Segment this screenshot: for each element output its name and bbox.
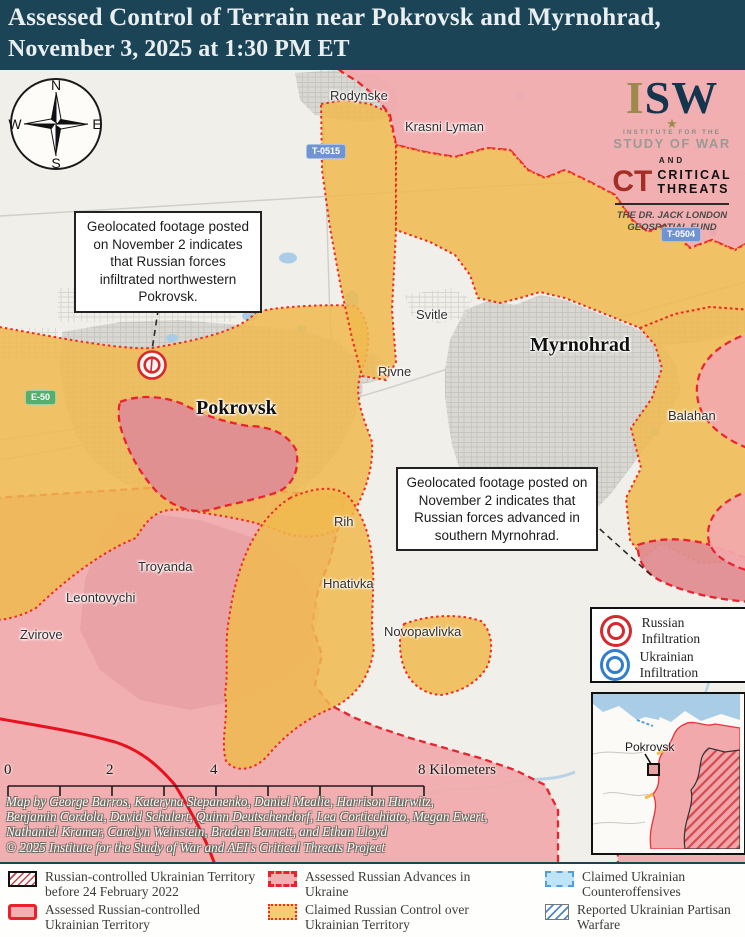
map-legend: Russian-controlled Ukrainian Territory b… <box>0 862 745 937</box>
settlement-label: Rih <box>334 514 354 529</box>
russian-infiltration-icon <box>600 615 632 647</box>
legend-swatch-claimed <box>268 904 297 920</box>
settlement-label: Myrnohrad <box>530 334 630 357</box>
legend-label: Reported Ukrainian Partisan Warfare <box>577 902 742 932</box>
settlement-label: Leontovychi <box>66 590 135 605</box>
isw-map-graphic: Assessed Control of Terrain near Pokrovs… <box>0 0 745 937</box>
legend-label: Russian-controlled Ukrainian Territory b… <box>45 869 257 899</box>
settlement-label: Pokrovsk <box>196 397 277 420</box>
infiltration-legend-label: Ukrainian Infiltration <box>640 649 745 681</box>
compass-s: S <box>51 155 60 171</box>
title-bar: Assessed Control of Terrain near Pokrovs… <box>0 0 745 70</box>
compass-rose: N S W E <box>8 76 104 177</box>
legend-swatch-assessed <box>8 904 37 920</box>
compass-w: W <box>8 116 22 132</box>
scale-label-8km: 8 Kilometers <box>418 762 496 779</box>
legend-swatch-counteroffensive <box>545 871 574 887</box>
legend-item: Claimed Russian Control over Ukrainian T… <box>268 902 518 932</box>
legend-label: Assessed Russian Advances in Ukraine <box>305 869 510 899</box>
legend-item: Reported Ukrainian Partisan Warfare <box>545 902 743 932</box>
road-badge-t0504: T-0504 <box>661 227 701 242</box>
settlement-label: Rivne <box>378 364 411 379</box>
road-badge-t0515: T-0515 <box>306 144 346 159</box>
map-credits: Map by George Barros, Kateryna Stepanenk… <box>6 794 566 855</box>
settlement-label: Hnativka <box>323 576 374 591</box>
scale-label-0: 0 <box>4 762 12 779</box>
critical-threats-label: CRITICAL THREATS <box>657 168 731 196</box>
inset-pokrovsk-label: Pokrovsk <box>625 740 674 754</box>
ukrainian-infiltration-icon <box>600 649 630 681</box>
isw-institute-line: INSTITUTE FOR THE <box>603 129 741 136</box>
isw-star-icon: ★ <box>603 120 741 128</box>
map-canvas: N S W E ISW ★ INSTITUTE FOR THE STUDY OF… <box>0 70 745 862</box>
isw-study-of-war-line: STUDY OF WAR <box>603 136 741 151</box>
compass-n: N <box>51 77 61 93</box>
legend-item: Claimed Ukrainian Counteroffensives <box>545 869 743 899</box>
legend-swatch-advance <box>268 871 297 887</box>
isw-ct-branding: ISW ★ INSTITUTE FOR THE STUDY OF WAR AND… <box>603 76 741 234</box>
inset-locator-map: Pokrovsk <box>591 692 745 855</box>
scale-label-4: 4 <box>210 762 218 779</box>
and-label: AND <box>603 156 741 165</box>
settlement-label: Zvirove <box>20 627 63 642</box>
legend-label: Claimed Ukrainian Counteroffensives <box>582 869 732 899</box>
settlement-label: Rodynske <box>330 88 388 103</box>
branding-divider <box>615 203 729 205</box>
map-date: November 3, 2025 at 1:30 PM ET <box>8 36 350 63</box>
legend-swatch-prewar <box>8 871 37 887</box>
russian-infiltration-marker <box>139 352 166 379</box>
legend-item: Assessed Russian-controlled Ukrainian Te… <box>8 902 258 932</box>
scale-label-2: 2 <box>106 762 114 779</box>
legend-label: Claimed Russian Control over Ukrainian T… <box>305 902 510 932</box>
compass-e: E <box>92 116 101 132</box>
legend-label: Assessed Russian-controlled Ukrainian Te… <box>45 902 245 932</box>
settlement-label: Balahan <box>668 408 716 423</box>
inset-pokrovsk-marker <box>648 764 659 775</box>
legend-item: Russian-controlled Ukrainian Territory b… <box>8 869 258 899</box>
settlement-label: Novopavlivka <box>384 624 461 639</box>
annotation-pokrovsk: Geolocated footage posted on November 2 … <box>74 211 262 313</box>
annotation-myrnohrad: Geolocated footage posted on November 2 … <box>396 467 598 551</box>
isw-logo: ISW <box>603 76 741 120</box>
settlement-label: Krasni Lyman <box>405 119 484 134</box>
legend-swatch-partisan <box>545 904 569 920</box>
infiltration-legend: Russian Infiltration Ukrainian Infiltrat… <box>590 607 745 683</box>
settlement-label: Troyanda <box>138 559 192 574</box>
road-badge-e50: E-50 <box>25 390 56 405</box>
map-title: Assessed Control of Terrain near Pokrovs… <box>8 4 661 32</box>
settlement-label: Svitle <box>416 307 448 322</box>
legend-item: Assessed Russian Advances in Ukraine <box>268 869 518 899</box>
ct-logo: CT <box>612 168 652 196</box>
infiltration-legend-label: Russian Infiltration <box>642 615 745 647</box>
